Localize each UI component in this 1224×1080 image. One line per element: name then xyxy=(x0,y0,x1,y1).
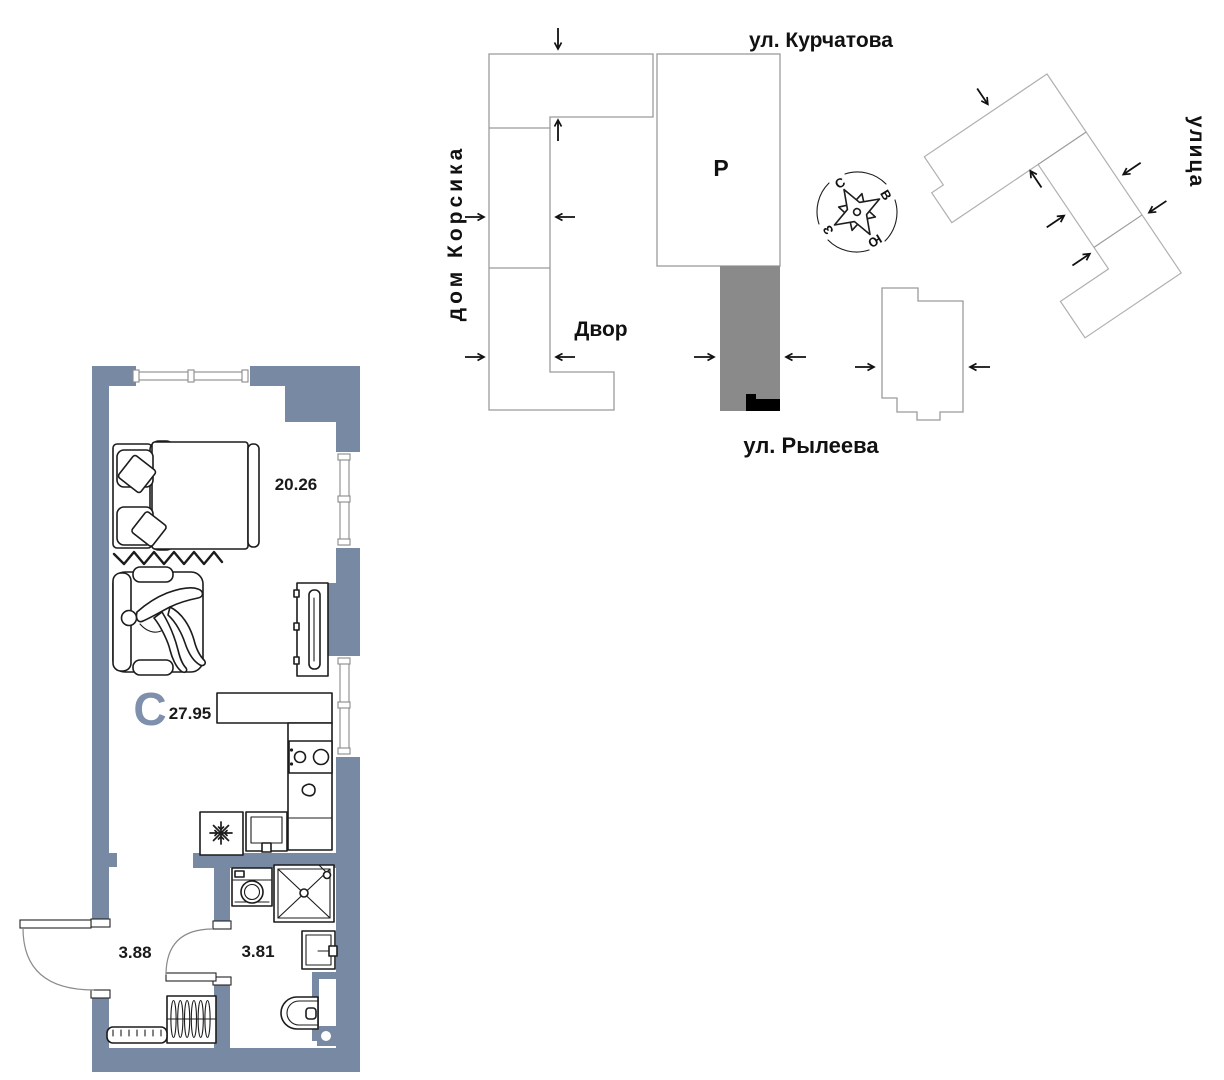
shower-icon xyxy=(274,865,334,922)
living-area-label: 20.26 xyxy=(275,475,318,494)
bathroom-sink-icon xyxy=(302,931,337,969)
entrance-door-swing xyxy=(23,928,94,990)
house-left-label: дом Корсика xyxy=(444,145,467,322)
toilet-icon xyxy=(281,997,318,1029)
bathroom-door-leaf xyxy=(166,973,216,981)
bath-area-label: 3.81 xyxy=(241,942,274,961)
stove-icon xyxy=(289,741,332,773)
courtyard-label: Двор xyxy=(574,318,627,341)
bathroom-door xyxy=(166,921,231,985)
entrance-jamb-bottom xyxy=(91,990,110,998)
unit-type-letter: С xyxy=(133,683,166,735)
wall-corner-top-right xyxy=(285,386,360,422)
neighbour-building xyxy=(882,288,963,420)
sink-cabinet-icon xyxy=(246,812,287,852)
hall-area-label: 3.88 xyxy=(118,943,151,962)
kitchen xyxy=(200,693,332,855)
plan-canvas: Р xyxy=(0,0,1224,1080)
wall-hall-stub xyxy=(108,853,117,867)
wall-right-1 xyxy=(336,422,360,452)
street-top-label: ул. Курчатова xyxy=(749,29,893,52)
window-top xyxy=(133,370,248,382)
highlighted-building xyxy=(720,266,780,411)
bed xyxy=(113,441,259,550)
washing-machine-icon xyxy=(232,868,272,906)
compass-star xyxy=(820,175,893,248)
bath-jamb-top xyxy=(213,921,231,929)
sofa xyxy=(113,567,205,675)
wall-top-right xyxy=(250,366,360,386)
entrance-jamb-top xyxy=(91,919,110,927)
wall-top-left xyxy=(92,366,136,386)
fridge-icon xyxy=(200,812,243,855)
compass-north: С xyxy=(832,174,848,192)
wall-bath-upper xyxy=(214,868,230,929)
total-area-label: 27.95 xyxy=(169,704,212,723)
blanket-zigzag-icon xyxy=(114,552,222,564)
entrance-door xyxy=(20,919,110,998)
window-right-2 xyxy=(338,658,350,754)
bench-icon xyxy=(107,1027,167,1043)
bathroom-door-swing xyxy=(166,929,213,975)
wall-niche-top xyxy=(312,972,336,979)
street-bottom-label: ул. Рылеева xyxy=(743,433,879,458)
street-right-label: улица xyxy=(1185,116,1208,189)
compass-east: В xyxy=(877,187,895,203)
window-right-1 xyxy=(338,454,350,545)
kitchen-counter xyxy=(217,693,332,723)
compass-rose: С В Ю З xyxy=(817,172,897,252)
wall-bottom xyxy=(92,1048,360,1072)
highlighted-building-fill xyxy=(720,266,780,411)
wall-right-2 xyxy=(336,548,360,656)
shaft-pipe-icon xyxy=(321,1031,331,1041)
site-plan: Р xyxy=(444,28,1208,458)
hallway xyxy=(107,996,216,1043)
parking-building: Р xyxy=(657,54,780,266)
floorplan-page: Р xyxy=(0,0,1224,1080)
wall-right-3 xyxy=(336,757,360,1072)
parking-label: Р xyxy=(713,155,728,181)
wardrobe-icon xyxy=(167,996,216,1043)
apartment-floor-plan: 20.26 С 27.95 3.88 3.81 xyxy=(20,366,360,1072)
tv-stand xyxy=(294,583,328,676)
wall-left-upper xyxy=(92,386,109,920)
entrance-door-leaf xyxy=(20,920,91,928)
